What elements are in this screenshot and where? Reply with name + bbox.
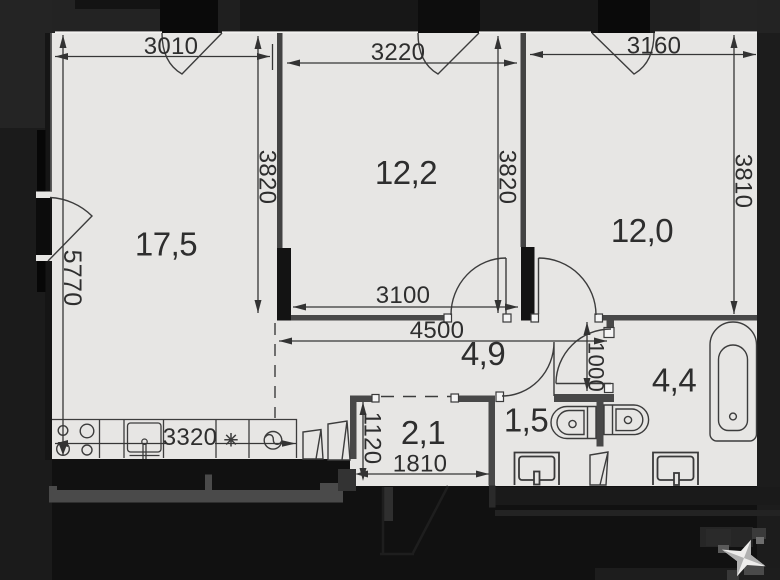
svg-text:3820: 3820 [254, 150, 281, 205]
svg-text:1,5: 1,5 [504, 402, 548, 439]
svg-text:4,9: 4,9 [461, 335, 505, 372]
svg-text:12,2: 12,2 [375, 154, 437, 191]
svg-text:12,0: 12,0 [611, 212, 673, 249]
svg-text:3160: 3160 [627, 33, 682, 60]
svg-text:3100: 3100 [376, 282, 431, 309]
svg-text:5770: 5770 [58, 250, 86, 307]
svg-text:4,4: 4,4 [652, 362, 697, 399]
svg-text:3220: 3220 [371, 39, 426, 66]
svg-text:3810: 3810 [730, 154, 757, 209]
svg-text:17,5: 17,5 [135, 226, 197, 263]
svg-text:1120: 1120 [359, 412, 386, 465]
svg-text:2,1: 2,1 [401, 414, 445, 451]
svg-text:1810: 1810 [393, 451, 448, 478]
svg-text:3010: 3010 [144, 33, 199, 60]
svg-text:4500: 4500 [410, 317, 465, 344]
svg-text:3820: 3820 [494, 150, 521, 205]
svg-text:1000: 1000 [584, 342, 609, 392]
svg-text:3320: 3320 [163, 424, 218, 451]
